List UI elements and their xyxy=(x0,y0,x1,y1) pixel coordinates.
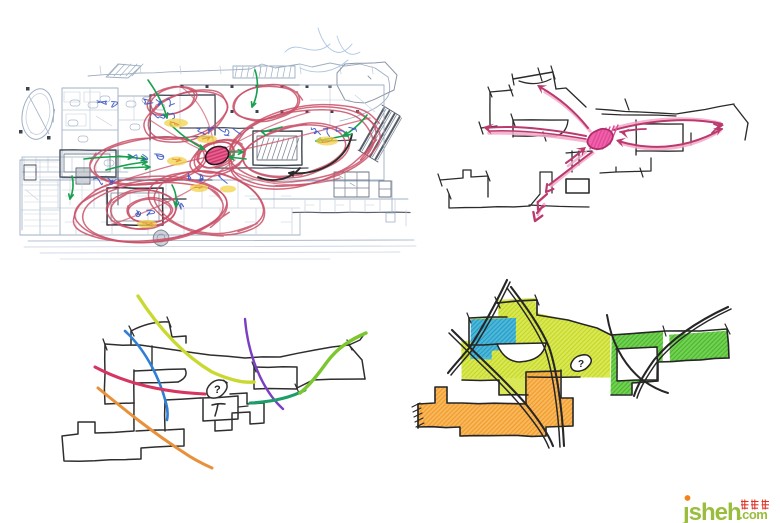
svg-text:jsheh: jsheh xyxy=(682,499,741,523)
svg-text:.com: .com xyxy=(739,507,767,522)
svg-text:?: ? xyxy=(578,359,584,370)
svg-text:?: ? xyxy=(214,384,221,396)
